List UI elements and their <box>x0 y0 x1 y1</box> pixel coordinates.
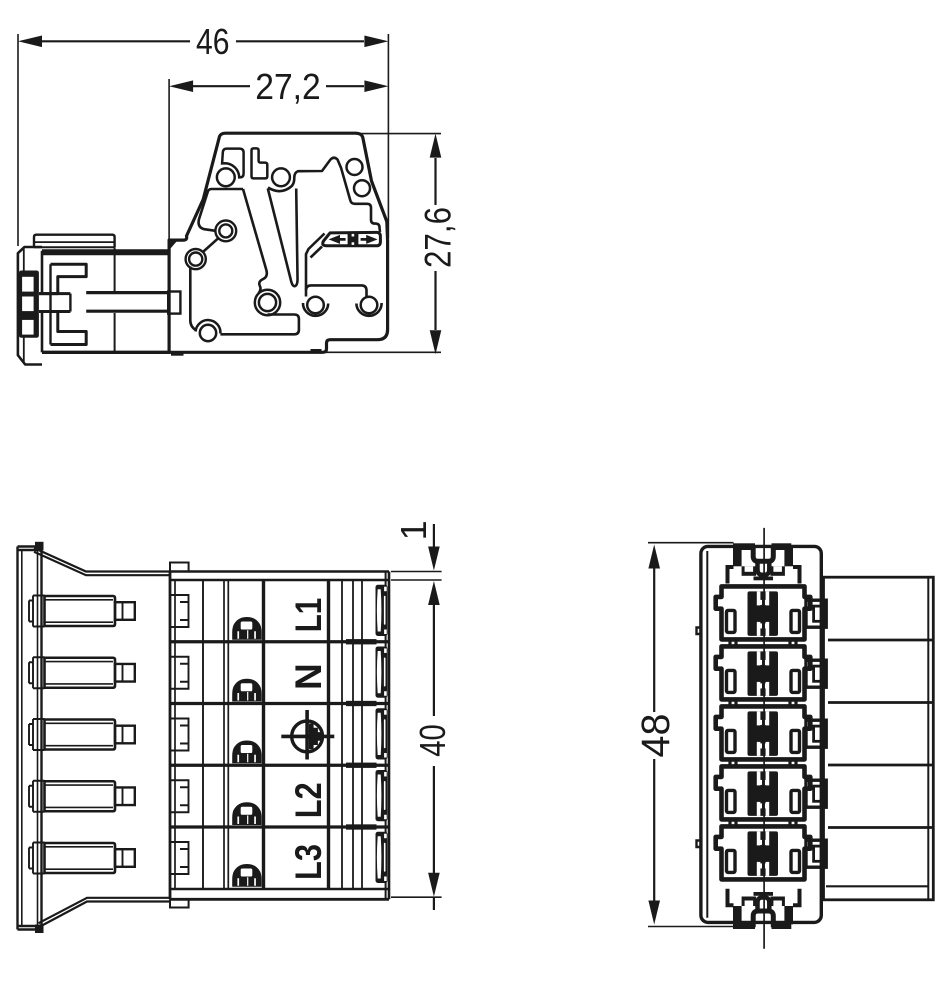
svg-text:40: 40 <box>412 724 453 757</box>
svg-text:L1: L1 <box>288 598 329 633</box>
svg-text:N: N <box>288 663 329 690</box>
svg-text:27,6: 27,6 <box>418 207 459 268</box>
svg-text:1: 1 <box>393 520 434 540</box>
svg-text:L2: L2 <box>288 782 329 818</box>
svg-text:46: 46 <box>196 21 230 62</box>
svg-text:L3: L3 <box>288 844 329 880</box>
svg-text:48: 48 <box>634 714 678 758</box>
svg-text:27,2: 27,2 <box>255 66 321 107</box>
